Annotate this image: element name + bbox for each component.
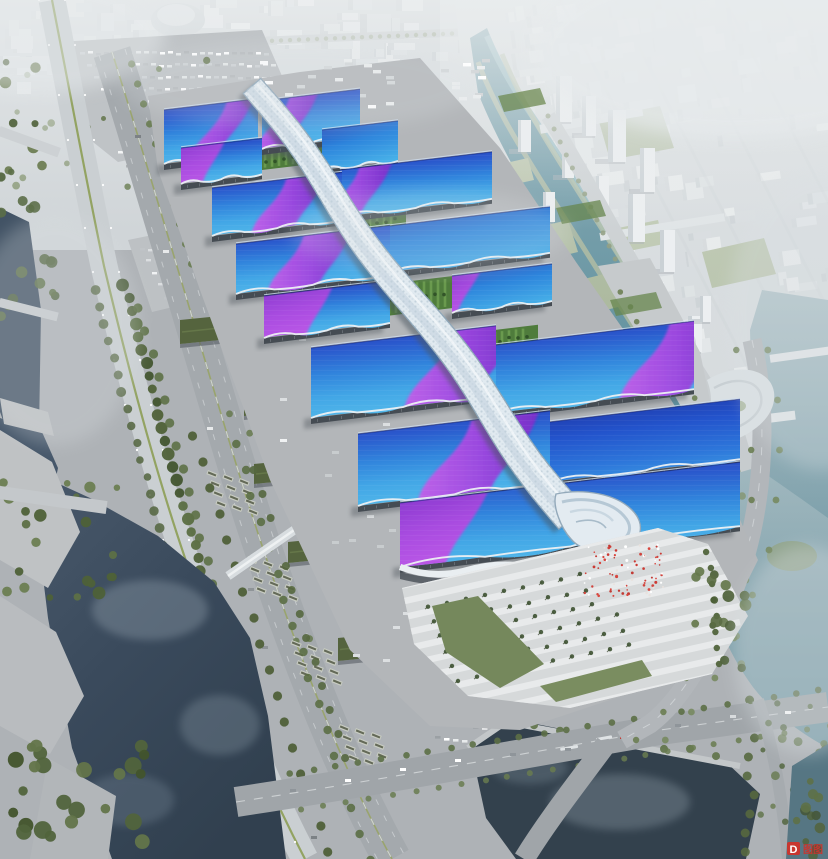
- svg-text:图图: 图图: [803, 844, 823, 856]
- svg-text:D: D: [790, 844, 798, 856]
